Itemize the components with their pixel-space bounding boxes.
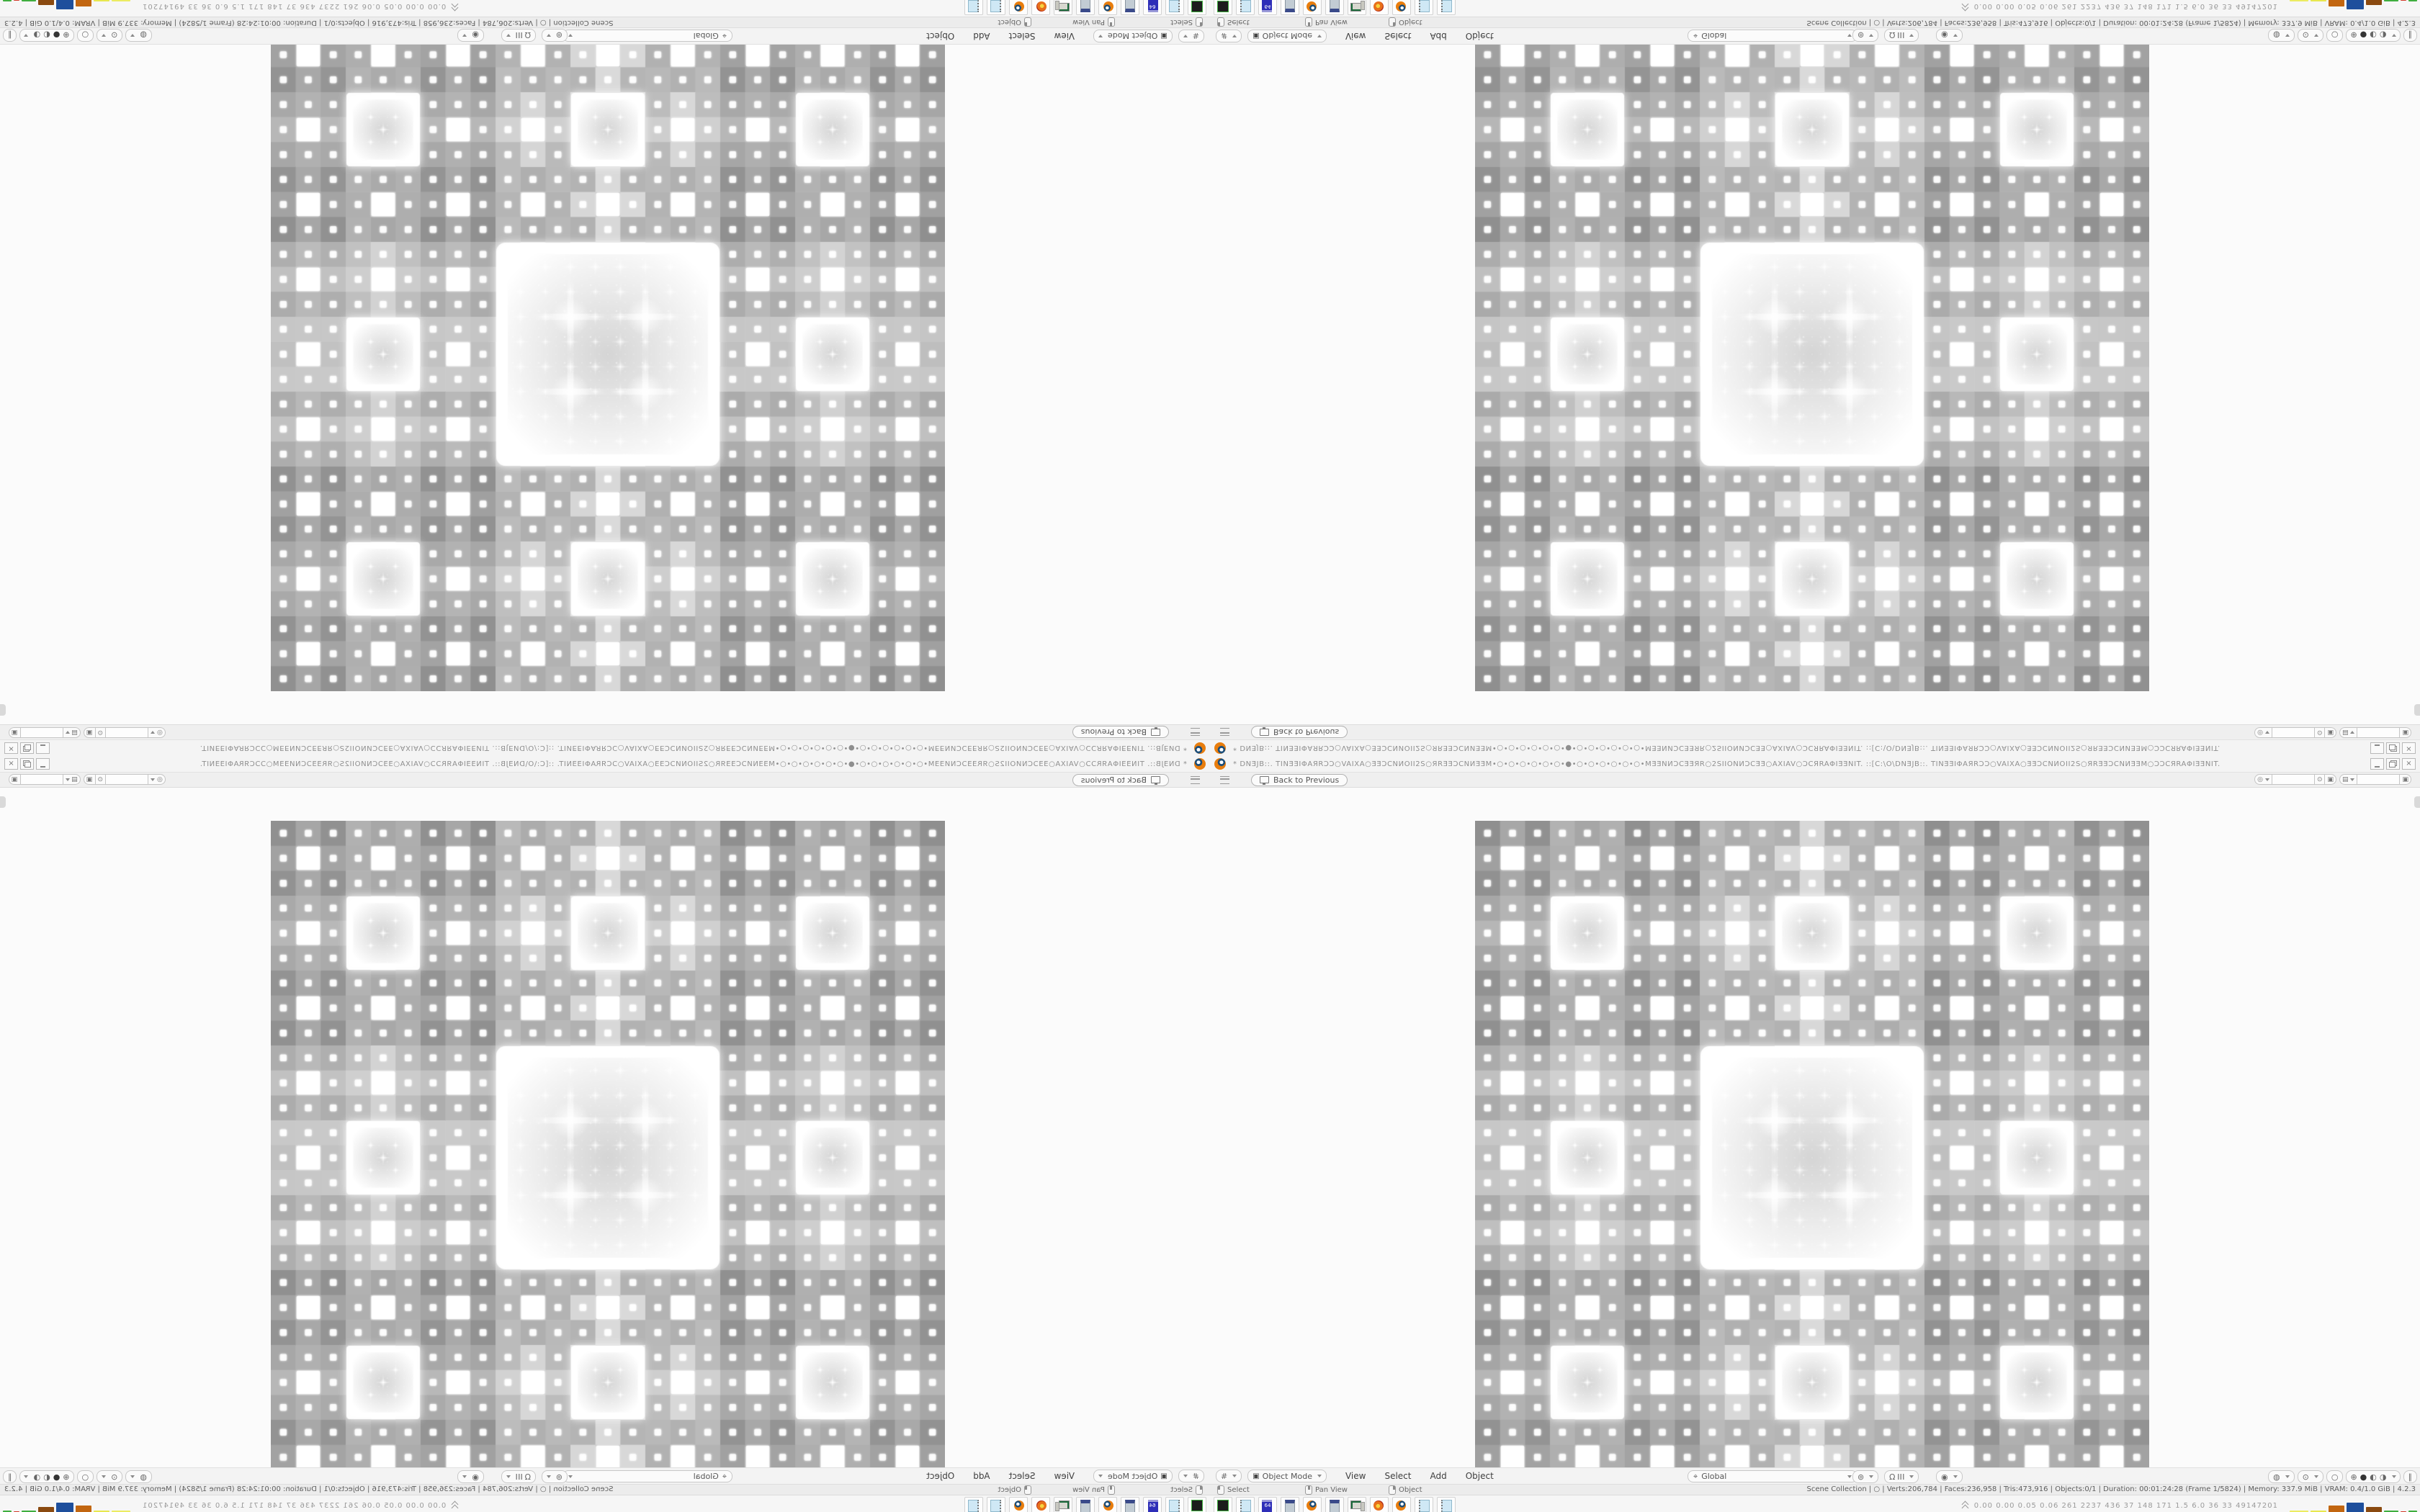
back-to-previous-button[interactable]: Back to Previous bbox=[1251, 726, 1348, 739]
editor-type-button[interactable]: # bbox=[1178, 30, 1204, 42]
viewport-3d[interactable] bbox=[0, 45, 1210, 724]
monitor-bar bbox=[38, 1507, 54, 1512]
taskbar-disk-utility-icon[interactable] bbox=[1188, 1497, 1206, 1512]
transform-orientation-dropdown[interactable]: ⌖ Global bbox=[1688, 30, 1857, 42]
taskbar-floppy64-icon[interactable]: 64 bbox=[1143, 0, 1162, 16]
back-to-previous-button[interactable]: Back to Previous bbox=[1251, 774, 1348, 786]
scene-pin-button[interactable]: ⊙ bbox=[2314, 774, 2326, 785]
scene-browse-button[interactable]: ◎ bbox=[148, 727, 166, 738]
viewport-header: # ▣ Object Mode View Select Add Object ⌖… bbox=[1210, 28, 2420, 45]
taskbar-computer-icon[interactable] bbox=[1348, 0, 1366, 16]
menu-object[interactable]: Object bbox=[1466, 31, 1494, 41]
overlays-dropdown[interactable]: ⊙ bbox=[2298, 29, 2323, 42]
snap-dropdown[interactable]: Ω bbox=[501, 29, 536, 42]
menu-object[interactable]: Object bbox=[926, 31, 954, 41]
object-mode-dropdown[interactable]: ▣ Object Mode bbox=[1093, 30, 1173, 42]
xray-toggle[interactable]: ○ bbox=[77, 1470, 94, 1483]
object-mode-dropdown[interactable]: ▣ Object Mode bbox=[1247, 30, 1327, 42]
falloff-icon: ⊚ bbox=[556, 31, 563, 40]
proportional-editing-button[interactable]: ◉ bbox=[457, 1470, 484, 1483]
object-mode-dropdown[interactable]: ▣ Object Mode bbox=[1093, 1470, 1173, 1482]
menu-view[interactable]: View bbox=[1345, 31, 1366, 41]
taskbar-notepad-icon[interactable] bbox=[1437, 0, 1456, 16]
editor-type-button[interactable]: # bbox=[1216, 1470, 1242, 1482]
shading-material-button[interactable]: ◐ bbox=[2370, 1472, 2377, 1482]
transform-orientation-dropdown[interactable]: ⌖ Global bbox=[563, 1470, 732, 1482]
falloff-icon: ⊚ bbox=[556, 1472, 563, 1482]
hint-object-label: Object bbox=[998, 1486, 1021, 1494]
viewlayer-browse-button[interactable]: ▤ bbox=[63, 774, 81, 785]
chevron-down-icon bbox=[1869, 1475, 1873, 1478]
xray-toggle[interactable]: ○ bbox=[77, 29, 94, 42]
expand-chevrons-icon[interactable] bbox=[1963, 3, 1968, 10]
window-title-bar: * DNƎJB::. TINƎƎIΦAЯRƆƆ○VAIXA○ƎƎƆCNИOII2… bbox=[1210, 740, 2420, 756]
pause-button[interactable]: ∥ bbox=[3, 1470, 17, 1483]
chevron-down-icon bbox=[2314, 1475, 2318, 1478]
mouse-left-icon bbox=[1196, 17, 1203, 27]
xray-toggle[interactable]: ○ bbox=[2326, 1470, 2344, 1483]
chevron-down-icon bbox=[2350, 778, 2354, 781]
screen-icon bbox=[1260, 776, 1269, 783]
chevron-down-icon bbox=[547, 1475, 551, 1478]
hint-pan-view: Pan View bbox=[1305, 17, 1348, 27]
chevron-down-icon bbox=[1232, 1475, 1237, 1477]
blender-window: * DNƎJB::. TINƎƎIΦAЯRƆƆ○VAIXA○ƎƎƆCNИOII2… bbox=[0, 0, 1210, 756]
viewlayer-new-button[interactable]: ▣ bbox=[9, 727, 21, 738]
shading-mode-group: ⊕ ● ◐ ◑ bbox=[2346, 1470, 2400, 1483]
viewlayer-browse-button[interactable]: ▤ bbox=[2339, 774, 2358, 785]
scene-pin-button[interactable]: ⊙ bbox=[95, 774, 107, 785]
orientation-icon: ⌖ bbox=[722, 31, 727, 41]
scroll-nub[interactable] bbox=[2414, 704, 2420, 716]
scene-new-button[interactable]: ▣ bbox=[84, 774, 96, 785]
snap-increment-icon bbox=[1898, 32, 1904, 38]
editor-type-button[interactable]: # bbox=[1216, 30, 1242, 42]
chevron-down-icon bbox=[568, 1475, 573, 1478]
fractal-render bbox=[1475, 821, 2149, 1495]
minimize-button[interactable] bbox=[36, 758, 50, 770]
taskbar-blender-icon[interactable] bbox=[1303, 0, 1322, 16]
taskbar-firefox-icon[interactable] bbox=[1370, 0, 1389, 16]
monitor-bar bbox=[56, 0, 73, 9]
os-taskbar: 64 0.00 0.00 0.05 0.06 261 2237 436 37 1… bbox=[1210, 0, 2420, 17]
scene-new-button[interactable]: ▣ bbox=[84, 727, 96, 738]
taskbar-blender-icon[interactable] bbox=[1098, 1497, 1117, 1512]
menu-select[interactable]: Select bbox=[1009, 31, 1036, 41]
mouse-left-icon bbox=[1196, 1485, 1203, 1495]
viewport-editor-icon: # bbox=[1193, 32, 1199, 41]
scene-name-input[interactable] bbox=[105, 727, 148, 738]
taskbar-computer-icon[interactable] bbox=[1054, 0, 1072, 16]
transform-orientation-dropdown[interactable]: ⌖ Global bbox=[1688, 1470, 1857, 1482]
falloff-dropdown[interactable]: ⊚ bbox=[542, 1470, 568, 1483]
shading-solid-button[interactable]: ● bbox=[2360, 1472, 2367, 1482]
snap-dropdown[interactable]: Ω bbox=[501, 1470, 536, 1483]
chevron-down-icon bbox=[1909, 34, 1914, 37]
falloff-dropdown[interactable]: ⊚ bbox=[1852, 1470, 1878, 1483]
shading-wireframe-button[interactable]: ⊕ bbox=[2350, 1472, 2357, 1482]
scene-name-input[interactable] bbox=[2272, 774, 2315, 785]
expand-chevrons-icon[interactable] bbox=[452, 1502, 457, 1509]
viewport-3d[interactable] bbox=[0, 788, 1210, 1467]
screenshot-root: * DNƎJB::. TINƎƎIΦAЯRƆƆ○VAIXA○ƎƎƆCNИOII2… bbox=[0, 0, 2420, 1512]
editor-type-button[interactable]: # bbox=[1178, 1470, 1204, 1482]
shading-material-button[interactable]: ◐ bbox=[43, 31, 50, 40]
pause-button[interactable]: ∥ bbox=[3, 29, 17, 42]
viewlayer-new-button[interactable]: ▣ bbox=[2399, 774, 2411, 785]
shading-rendered-button[interactable]: ◑ bbox=[34, 31, 41, 40]
restore-icon bbox=[2389, 762, 2396, 768]
menu-select[interactable]: Select bbox=[1384, 31, 1411, 41]
viewport-3d[interactable] bbox=[1210, 45, 2420, 724]
taskbar-notepad-icon[interactable] bbox=[964, 0, 983, 16]
viewlayer-icon: ▤ bbox=[2342, 776, 2349, 783]
viewlayer-new-button[interactable]: ▣ bbox=[9, 774, 21, 785]
taskbar-blender-icon[interactable] bbox=[1009, 1497, 1028, 1512]
taskbar-calculator-icon[interactable] bbox=[1076, 1497, 1095, 1512]
restore-button[interactable] bbox=[20, 758, 34, 770]
monitor-bar bbox=[38, 0, 54, 5]
object-mode-label: Object Mode bbox=[1263, 1472, 1312, 1481]
chevron-down-icon bbox=[1098, 35, 1103, 37]
chevron-down-icon bbox=[547, 34, 551, 37]
falloff-dropdown[interactable]: ⊚ bbox=[542, 29, 568, 42]
chevron-down-icon bbox=[2392, 1475, 2396, 1478]
taskbar-disk-utility-icon[interactable] bbox=[1188, 0, 1206, 16]
viewlayer-selector: ▤ ▣ bbox=[2340, 774, 2411, 785]
taskbar-notepad-icon[interactable] bbox=[1165, 1497, 1184, 1512]
viewlayer-icon: ▤ bbox=[72, 776, 79, 783]
snap-magnet-icon: Ω bbox=[525, 31, 531, 40]
chevron-down-icon bbox=[1909, 1475, 1914, 1478]
hamburger-menu-icon[interactable] bbox=[1191, 776, 1200, 784]
expand-chevrons-icon[interactable] bbox=[1963, 1502, 1968, 1509]
scene-browse-button[interactable]: ◎ bbox=[2254, 727, 2272, 738]
monitor-bar bbox=[56, 1503, 73, 1512]
menu-view[interactable]: View bbox=[1054, 31, 1075, 41]
scene-icon: ◎ bbox=[157, 729, 163, 737]
shading-material-button[interactable]: ◐ bbox=[2370, 31, 2377, 40]
monitor-bar bbox=[2366, 1507, 2382, 1512]
scene-name-input[interactable] bbox=[105, 774, 148, 785]
xray-toggle[interactable]: ○ bbox=[2326, 29, 2344, 42]
hint-select: Select bbox=[1217, 17, 1250, 27]
pause-button[interactable]: ∥ bbox=[2403, 1470, 2418, 1483]
snap-dropdown[interactable]: Ω bbox=[1884, 29, 1919, 42]
orientation-icon: ⌖ bbox=[722, 1472, 727, 1482]
hint-select-label: Select bbox=[1170, 18, 1193, 26]
object-mode-label: Object Mode bbox=[1108, 1472, 1157, 1481]
gizmo-dropdown[interactable]: ◍ bbox=[125, 1470, 152, 1483]
viewlayer-selector: ▤ ▣ bbox=[9, 727, 80, 738]
restore-button[interactable] bbox=[20, 742, 34, 754]
viewlayer-selector: ▤ ▣ bbox=[2340, 727, 2411, 738]
scene-stats-text: Scene Collection | ○ | Verts:206,784 | F… bbox=[1807, 19, 2416, 27]
gizmo-icon: ◍ bbox=[140, 1472, 147, 1482]
menu-add[interactable]: Add bbox=[1430, 31, 1446, 41]
overlays-icon: ⊙ bbox=[111, 1472, 117, 1482]
chevron-down-icon bbox=[2314, 34, 2318, 37]
hint-pan-view-label: Pan View bbox=[1072, 1486, 1105, 1494]
overlays-icon: ⊙ bbox=[2303, 1472, 2309, 1482]
viewport-3d[interactable] bbox=[1210, 788, 2420, 1467]
taskbar-blender-icon[interactable] bbox=[1392, 1497, 1411, 1512]
shading-solid-button[interactable]: ● bbox=[53, 31, 60, 40]
os-taskbar: 64 0.00 0.00 0.05 0.06 261 2237 436 37 1… bbox=[0, 1495, 1210, 1512]
scene-new-button[interactable]: ▣ bbox=[2324, 774, 2336, 785]
hint-object: Object bbox=[1389, 17, 1422, 27]
restore-button[interactable] bbox=[2386, 742, 2400, 754]
taskbar-blender-icon[interactable] bbox=[1303, 1497, 1322, 1512]
pause-icon: ∥ bbox=[8, 1472, 12, 1482]
shading-rendered-button[interactable]: ◑ bbox=[2380, 1472, 2387, 1482]
object-mode-label: Object Mode bbox=[1263, 32, 1312, 41]
scroll-nub[interactable] bbox=[0, 796, 6, 808]
pause-button[interactable]: ∥ bbox=[2403, 29, 2418, 42]
viewlayer-new-button[interactable]: ▣ bbox=[2399, 727, 2411, 738]
menu-view[interactable]: View bbox=[1345, 1471, 1366, 1481]
shading-rendered-button[interactable]: ◑ bbox=[2380, 31, 2387, 40]
chevron-down-icon bbox=[151, 778, 155, 781]
taskbar-firefox-icon[interactable] bbox=[1370, 1497, 1389, 1512]
taskbar-firefox-icon[interactable] bbox=[1031, 0, 1050, 16]
scroll-nub[interactable] bbox=[0, 704, 6, 716]
hamburger-menu-icon[interactable] bbox=[1220, 729, 1229, 737]
close-button[interactable]: × bbox=[2402, 758, 2416, 770]
minimize-icon bbox=[40, 766, 45, 768]
taskbar-firefox-icon[interactable] bbox=[1031, 1497, 1050, 1512]
scene-new-button[interactable]: ▣ bbox=[2324, 727, 2336, 738]
gizmo-dropdown[interactable]: ◍ bbox=[125, 29, 152, 42]
viewlayer-name-input[interactable] bbox=[20, 774, 63, 785]
monitor-bar bbox=[2329, 1506, 2344, 1512]
scroll-nub[interactable] bbox=[2414, 796, 2420, 808]
pause-icon: ∥ bbox=[2408, 31, 2413, 40]
viewlayer-name-input[interactable] bbox=[20, 727, 63, 738]
taskbar-calculator-icon[interactable] bbox=[1325, 1497, 1344, 1512]
hint-pan-view-label: Pan View bbox=[1315, 18, 1348, 26]
taskbar-notepad-icon[interactable] bbox=[1415, 1497, 1433, 1512]
gizmo-dropdown[interactable]: ◍ bbox=[2268, 1470, 2295, 1483]
taskbar-disk-utility-icon[interactable] bbox=[1214, 0, 1232, 16]
chevron-down-icon bbox=[462, 1475, 467, 1478]
window-title-text: * DNƎJB::. TINƎƎIΦAЯRƆƆ○VAIXA○ƎƎƆCNИOII2… bbox=[1233, 760, 2363, 768]
system-monitor-widget: 0.00 0.00 0.05 0.06 261 2237 436 37 148 … bbox=[1, 1502, 457, 1512]
close-button[interactable]: × bbox=[4, 758, 18, 770]
taskbar-notepad-icon[interactable] bbox=[1165, 0, 1184, 16]
viewlayer-name-input[interactable] bbox=[2357, 774, 2400, 785]
hamburger-menu-icon[interactable] bbox=[1191, 729, 1200, 737]
menu-add[interactable]: Add bbox=[1430, 1471, 1446, 1481]
snap-increment-icon bbox=[516, 1474, 522, 1480]
scene-browse-button[interactable]: ◎ bbox=[148, 774, 166, 785]
hint-select-label: Select bbox=[1227, 18, 1250, 26]
proportional-editing-button[interactable]: ◉ bbox=[1936, 1470, 1963, 1483]
menu-add[interactable]: Add bbox=[973, 31, 990, 41]
chevron-down-icon bbox=[506, 34, 511, 37]
scene-pin-button[interactable]: ⊙ bbox=[2314, 727, 2326, 738]
taskbar-calculator-icon[interactable] bbox=[1121, 0, 1139, 16]
taskbar-computer-icon[interactable] bbox=[1054, 1497, 1072, 1512]
transform-orientation-dropdown[interactable]: ⌖ Global bbox=[563, 30, 732, 42]
shading-mode-group: ⊕ ● ◐ ◑ bbox=[2346, 29, 2400, 42]
mouse-right-icon bbox=[1389, 17, 1396, 27]
overlays-dropdown[interactable]: ⊙ bbox=[97, 1470, 122, 1483]
window-controls: × bbox=[2370, 742, 2416, 754]
chevron-down-icon bbox=[1317, 35, 1322, 37]
menu-object[interactable]: Object bbox=[926, 1471, 954, 1481]
close-button[interactable]: × bbox=[4, 742, 18, 754]
monitor-bar bbox=[2384, 0, 2398, 1]
viewlayer-browse-button[interactable]: ▤ bbox=[63, 727, 81, 738]
chevron-down-icon bbox=[102, 34, 106, 37]
orientation-icon: ⌖ bbox=[1693, 1472, 1698, 1482]
menu-object[interactable]: Object bbox=[1466, 1471, 1494, 1481]
minimize-button[interactable] bbox=[2370, 758, 2384, 770]
falloff-icon: ⊚ bbox=[1857, 1472, 1864, 1482]
taskbar-notepad-icon[interactable] bbox=[964, 1497, 983, 1512]
viewport-editor-icon: # bbox=[1193, 1472, 1199, 1481]
object-mode-dropdown[interactable]: ▣ Object Mode bbox=[1247, 1470, 1327, 1482]
topbar: Back to Previous ◎ ⊙ ▣ ▤ ▣ bbox=[0, 772, 1210, 788]
taskbar-disk-utility-icon[interactable] bbox=[1214, 1497, 1232, 1512]
viewlayer-selector: ▤ ▣ bbox=[9, 774, 80, 785]
taskbar-computer-icon[interactable] bbox=[1348, 1497, 1366, 1512]
overlays-dropdown[interactable]: ⊙ bbox=[97, 29, 122, 42]
overlays-dropdown[interactable]: ⊙ bbox=[2298, 1470, 2323, 1483]
gizmo-icon: ◍ bbox=[2273, 31, 2280, 40]
restore-button[interactable] bbox=[2386, 758, 2400, 770]
menu-select[interactable]: Select bbox=[1009, 1471, 1036, 1481]
system-monitor-widget: 0.00 0.00 0.05 0.06 261 2237 436 37 148 … bbox=[1963, 0, 2419, 10]
menu-view[interactable]: View bbox=[1054, 1471, 1075, 1481]
hint-pan-view: Pan View bbox=[1072, 1485, 1115, 1495]
topbar: Back to Previous ◎ ⊙ ▣ ▤ ▣ bbox=[1210, 724, 2420, 740]
status-bar: Select Pan View Object Scene Collection … bbox=[0, 1484, 1210, 1495]
taskbar-blender-icon[interactable] bbox=[1098, 0, 1117, 16]
header-right-cluster: ◍ ⊙ ○ ⊕ ● ◐ ◑ ∥ bbox=[3, 29, 152, 42]
shading-wireframe-button[interactable]: ⊕ bbox=[63, 31, 69, 40]
header-right-cluster: ◍ ⊙ ○ ⊕ ● ◐ ◑ ∥ bbox=[2268, 29, 2417, 42]
xray-icon: ○ bbox=[82, 1472, 89, 1482]
shading-solid-button[interactable]: ● bbox=[53, 1472, 60, 1482]
taskbar-blender-icon[interactable] bbox=[1392, 0, 1411, 16]
taskbar-floppy64-icon[interactable]: 64 bbox=[1258, 1497, 1277, 1512]
taskbar-floppy64-icon[interactable]: 64 bbox=[1143, 1497, 1162, 1512]
hint-pan-view-label: Pan View bbox=[1315, 1486, 1348, 1494]
back-to-previous-button[interactable]: Back to Previous bbox=[1072, 774, 1169, 786]
back-to-previous-label: Back to Previous bbox=[1081, 775, 1147, 785]
menu-select[interactable]: Select bbox=[1384, 1471, 1411, 1481]
minimize-button[interactable] bbox=[36, 742, 50, 754]
monitor-bar bbox=[2311, 0, 2326, 1]
hamburger-menu-icon[interactable] bbox=[1220, 776, 1229, 784]
back-to-previous-button[interactable]: Back to Previous bbox=[1072, 726, 1169, 739]
snap-increment-icon bbox=[1898, 1474, 1904, 1480]
taskbar-calculator-icon[interactable] bbox=[1281, 1497, 1299, 1512]
gizmo-dropdown[interactable]: ◍ bbox=[2268, 29, 2295, 42]
minimize-button[interactable] bbox=[2370, 742, 2384, 754]
scene-pin-button[interactable]: ⊙ bbox=[95, 727, 107, 738]
gizmo-icon: ◍ bbox=[2273, 1472, 2280, 1482]
monitor-bar bbox=[2347, 1503, 2364, 1512]
chevron-down-icon bbox=[2392, 34, 2396, 37]
taskbar-notepad-icon[interactable] bbox=[1236, 0, 1255, 16]
taskbar-blender-icon[interactable] bbox=[1009, 0, 1028, 16]
status-bar: Select Pan View Object Scene Collection … bbox=[0, 17, 1210, 28]
hint-object-label: Object bbox=[1399, 18, 1422, 26]
chevron-down-icon bbox=[1232, 35, 1237, 37]
back-to-previous-label: Back to Previous bbox=[1273, 775, 1339, 785]
orientation-label: Global bbox=[1701, 31, 1726, 40]
chevron-down-icon bbox=[1183, 1475, 1188, 1477]
mouse-left-icon bbox=[1217, 17, 1224, 27]
chevron-down-icon bbox=[1953, 34, 1958, 37]
hint-object-label: Object bbox=[1399, 1486, 1422, 1494]
taskbar-calculator-icon[interactable] bbox=[1076, 0, 1095, 16]
window-title-text: * DNƎJB::. TINƎƎIΦAЯRƆƆ○VAIXA○ƎƎƆCNИOII2… bbox=[57, 760, 1187, 768]
expand-chevrons-icon[interactable] bbox=[452, 3, 457, 10]
taskbar-notepad-icon[interactable] bbox=[987, 0, 1005, 16]
menu-add[interactable]: Add bbox=[973, 1471, 990, 1481]
xray-icon: ○ bbox=[2331, 31, 2339, 40]
viewlayer-name-input[interactable] bbox=[2357, 727, 2400, 738]
taskbar-floppy64-icon[interactable]: 64 bbox=[1258, 0, 1277, 16]
taskbar-notepad-icon[interactable] bbox=[1437, 1497, 1456, 1512]
chevron-down-icon bbox=[2285, 34, 2290, 37]
minimize-icon bbox=[2375, 745, 2380, 747]
shading-solid-button[interactable]: ● bbox=[2360, 31, 2367, 40]
taskbar-notepad-icon[interactable] bbox=[1236, 1497, 1255, 1512]
shading-wireframe-button[interactable]: ⊕ bbox=[63, 1472, 69, 1482]
system-monitor-bars bbox=[2290, 1503, 2417, 1512]
shading-rendered-button[interactable]: ◑ bbox=[34, 1472, 41, 1482]
monitor-bar bbox=[2401, 0, 2406, 1]
taskbar-calculator-icon[interactable] bbox=[1325, 0, 1344, 16]
scene-browse-button[interactable]: ◎ bbox=[2254, 774, 2272, 785]
viewlayer-browse-button[interactable]: ▤ bbox=[2339, 727, 2358, 738]
chevron-down-icon bbox=[66, 778, 70, 781]
topbar: Back to Previous ◎ ⊙ ▣ ▤ ▣ bbox=[1210, 772, 2420, 788]
proportional-editing-button[interactable]: ◉ bbox=[457, 29, 484, 42]
mouse-right-icon bbox=[1024, 1485, 1031, 1495]
shading-material-button[interactable]: ◐ bbox=[43, 1472, 50, 1482]
proportional-editing-button[interactable]: ◉ bbox=[1936, 29, 1963, 42]
chevron-down-icon bbox=[24, 1475, 29, 1478]
system-monitor-bars bbox=[2290, 0, 2417, 9]
snap-magnet-icon: Ω bbox=[1889, 31, 1895, 40]
taskbar-calculator-icon[interactable] bbox=[1281, 0, 1299, 16]
shading-wireframe-button[interactable]: ⊕ bbox=[2350, 31, 2357, 40]
system-monitor-values: 0.00 0.00 0.05 0.06 261 2237 436 37 148 … bbox=[1974, 2, 2278, 10]
taskbar-notepad-icon[interactable] bbox=[987, 1497, 1005, 1512]
proportional-icon: ◉ bbox=[472, 31, 479, 40]
monitor-bar bbox=[2366, 0, 2382, 5]
chevron-down-icon bbox=[462, 34, 467, 37]
taskbar-calculator-icon[interactable] bbox=[1121, 1497, 1139, 1512]
close-button[interactable]: × bbox=[2402, 742, 2416, 754]
scene-name-input[interactable] bbox=[2272, 727, 2315, 738]
monitor-bar bbox=[2347, 0, 2364, 9]
falloff-dropdown[interactable]: ⊚ bbox=[1852, 29, 1878, 42]
quadrant-bottom-right: * DNƎJB::. TINƎƎIΦAЯRƆƆ○VAIXA○ƎƎƆCNИOII2… bbox=[1210, 756, 2420, 1512]
viewport-editor-icon: # bbox=[1221, 32, 1227, 41]
taskbar-notepad-icon[interactable] bbox=[1415, 0, 1433, 16]
chevron-down-icon bbox=[1953, 1475, 1958, 1478]
snap-dropdown[interactable]: Ω bbox=[1884, 1470, 1919, 1483]
orientation-label: Global bbox=[694, 31, 719, 40]
back-to-previous-label: Back to Previous bbox=[1081, 728, 1147, 737]
